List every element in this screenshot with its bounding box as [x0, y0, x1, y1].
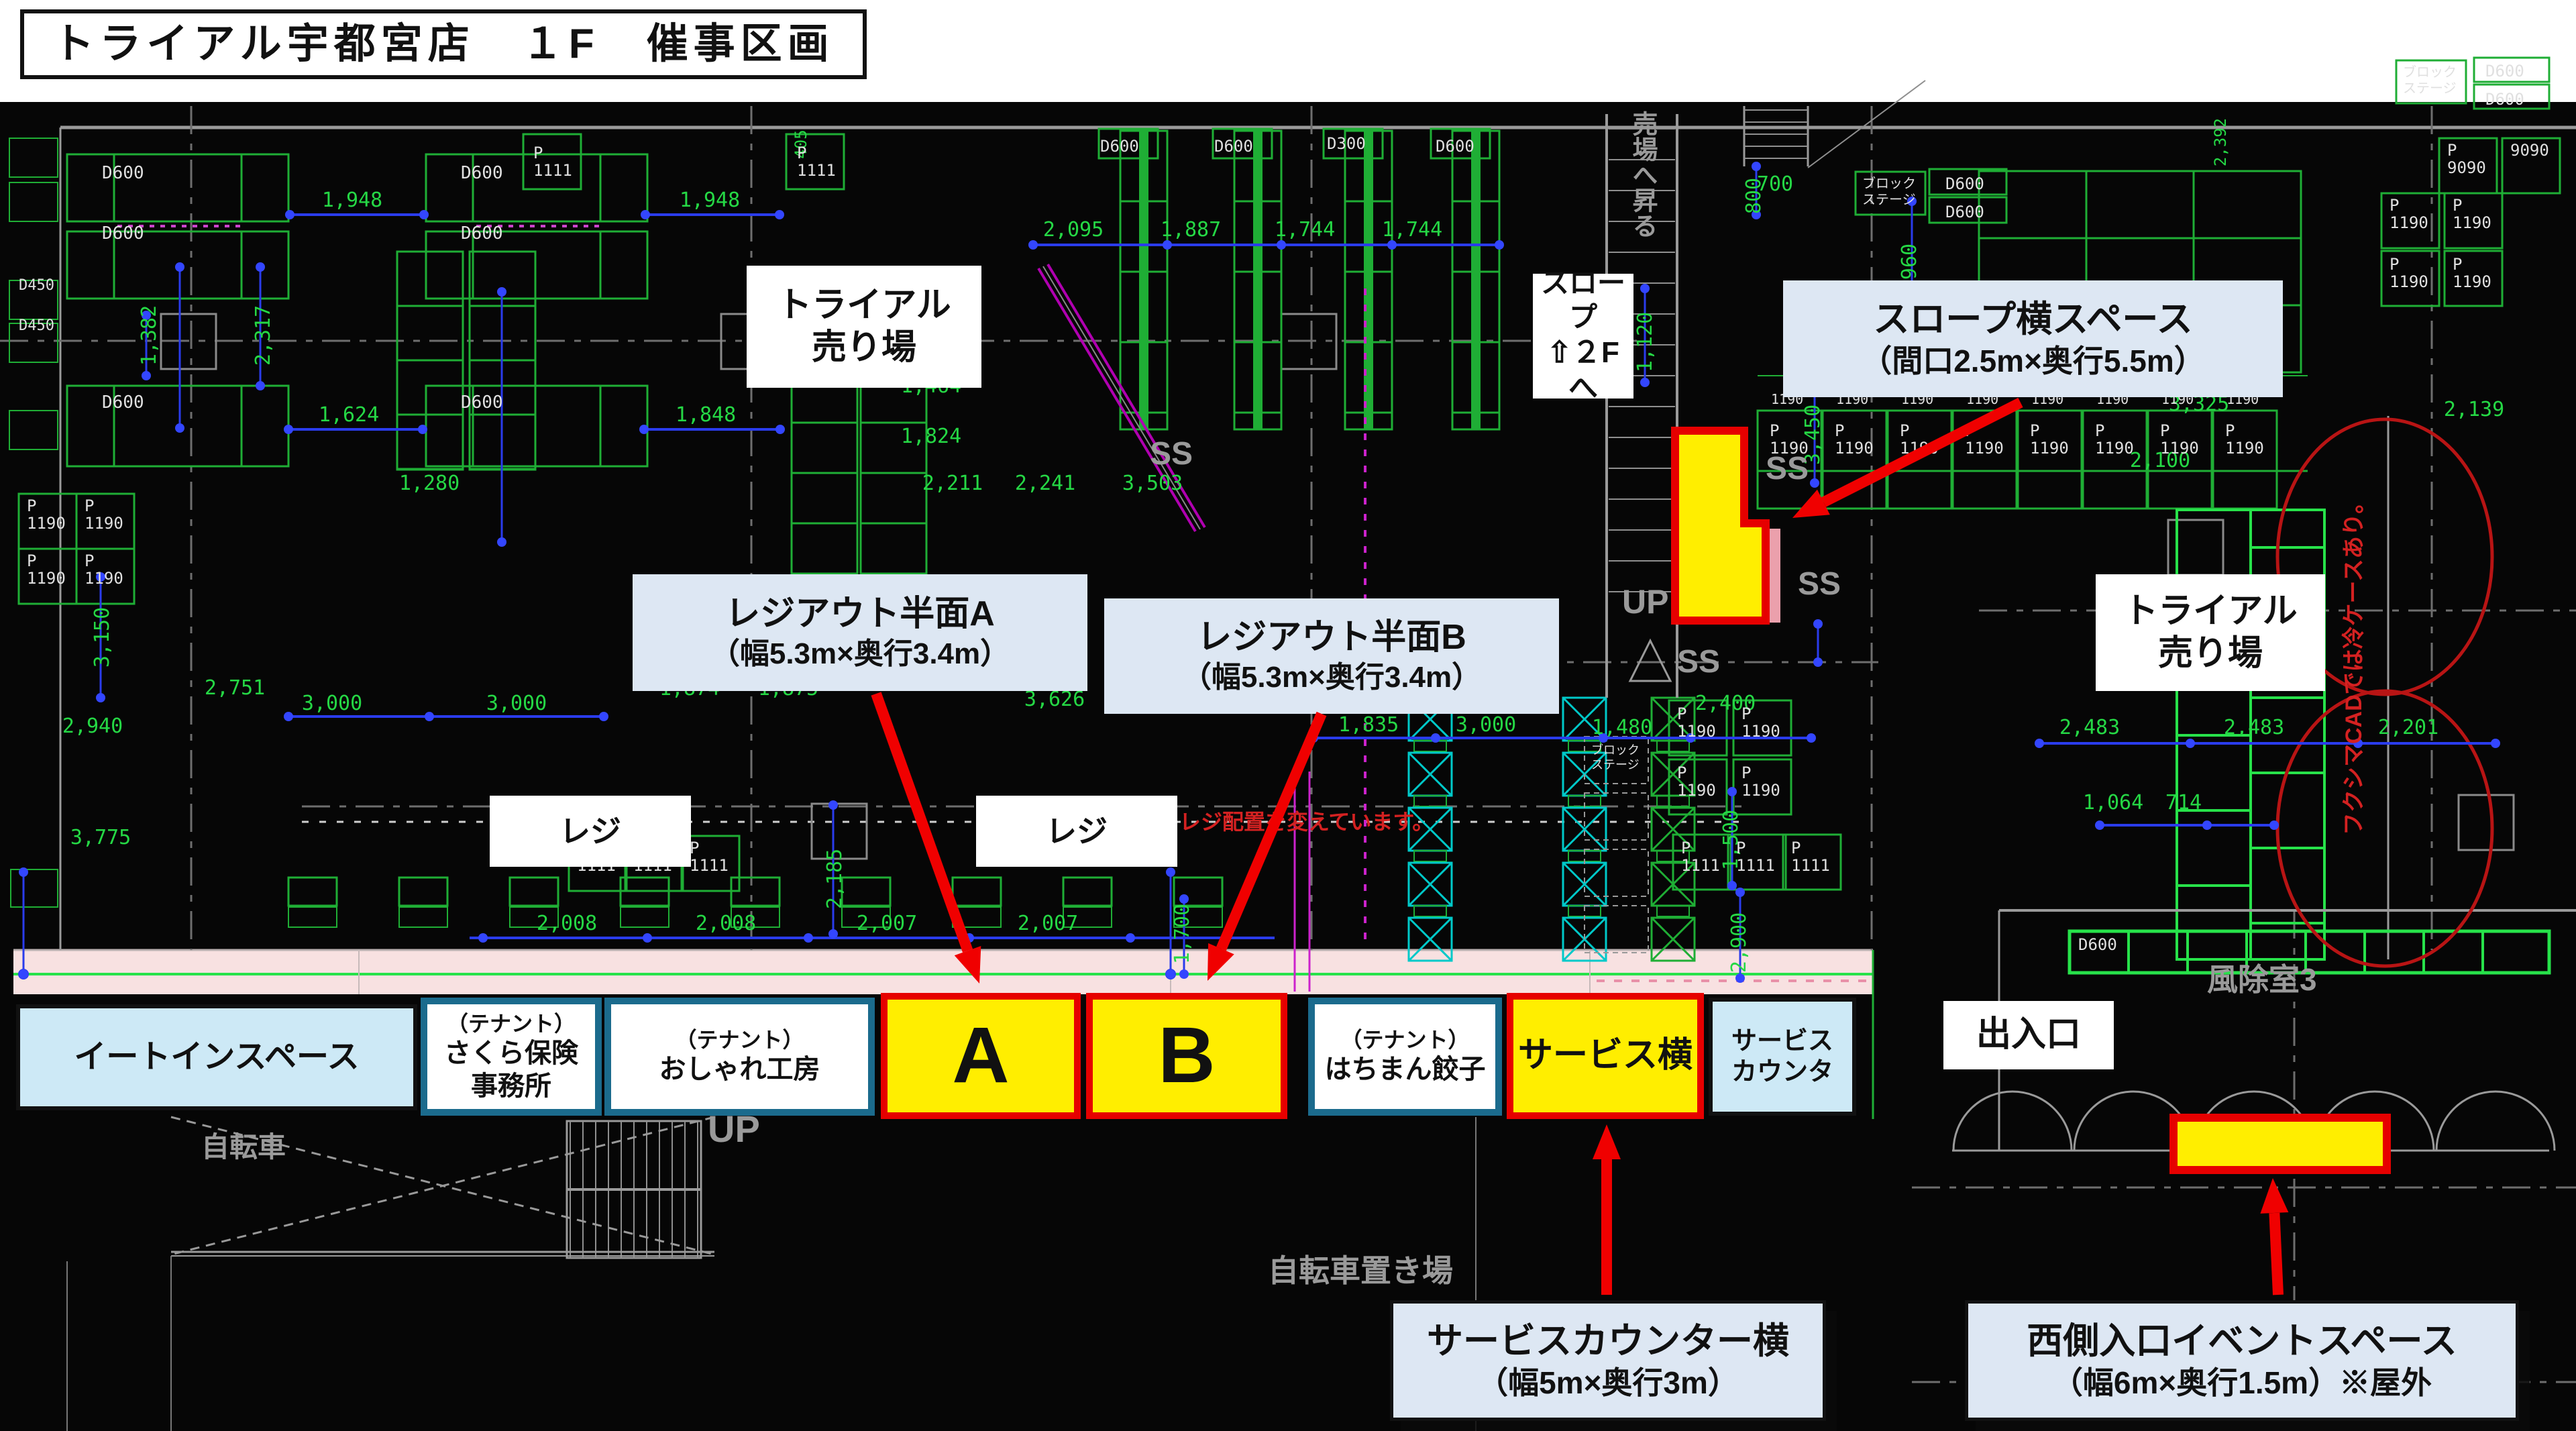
floor-plan-slide: 1,9481,9481,6241,8482,0951,8871,7441,744… — [0, 0, 2576, 1431]
arrow-to-slope-side-space — [1792, 403, 2021, 518]
arrow-to-space-a — [876, 694, 981, 984]
arrow-to-space-b — [1207, 714, 1322, 981]
arrow-to-west-space — [2260, 1178, 2288, 1295]
arrow-layer — [0, 0, 2576, 1431]
arrow-to-service-side — [1593, 1124, 1621, 1295]
